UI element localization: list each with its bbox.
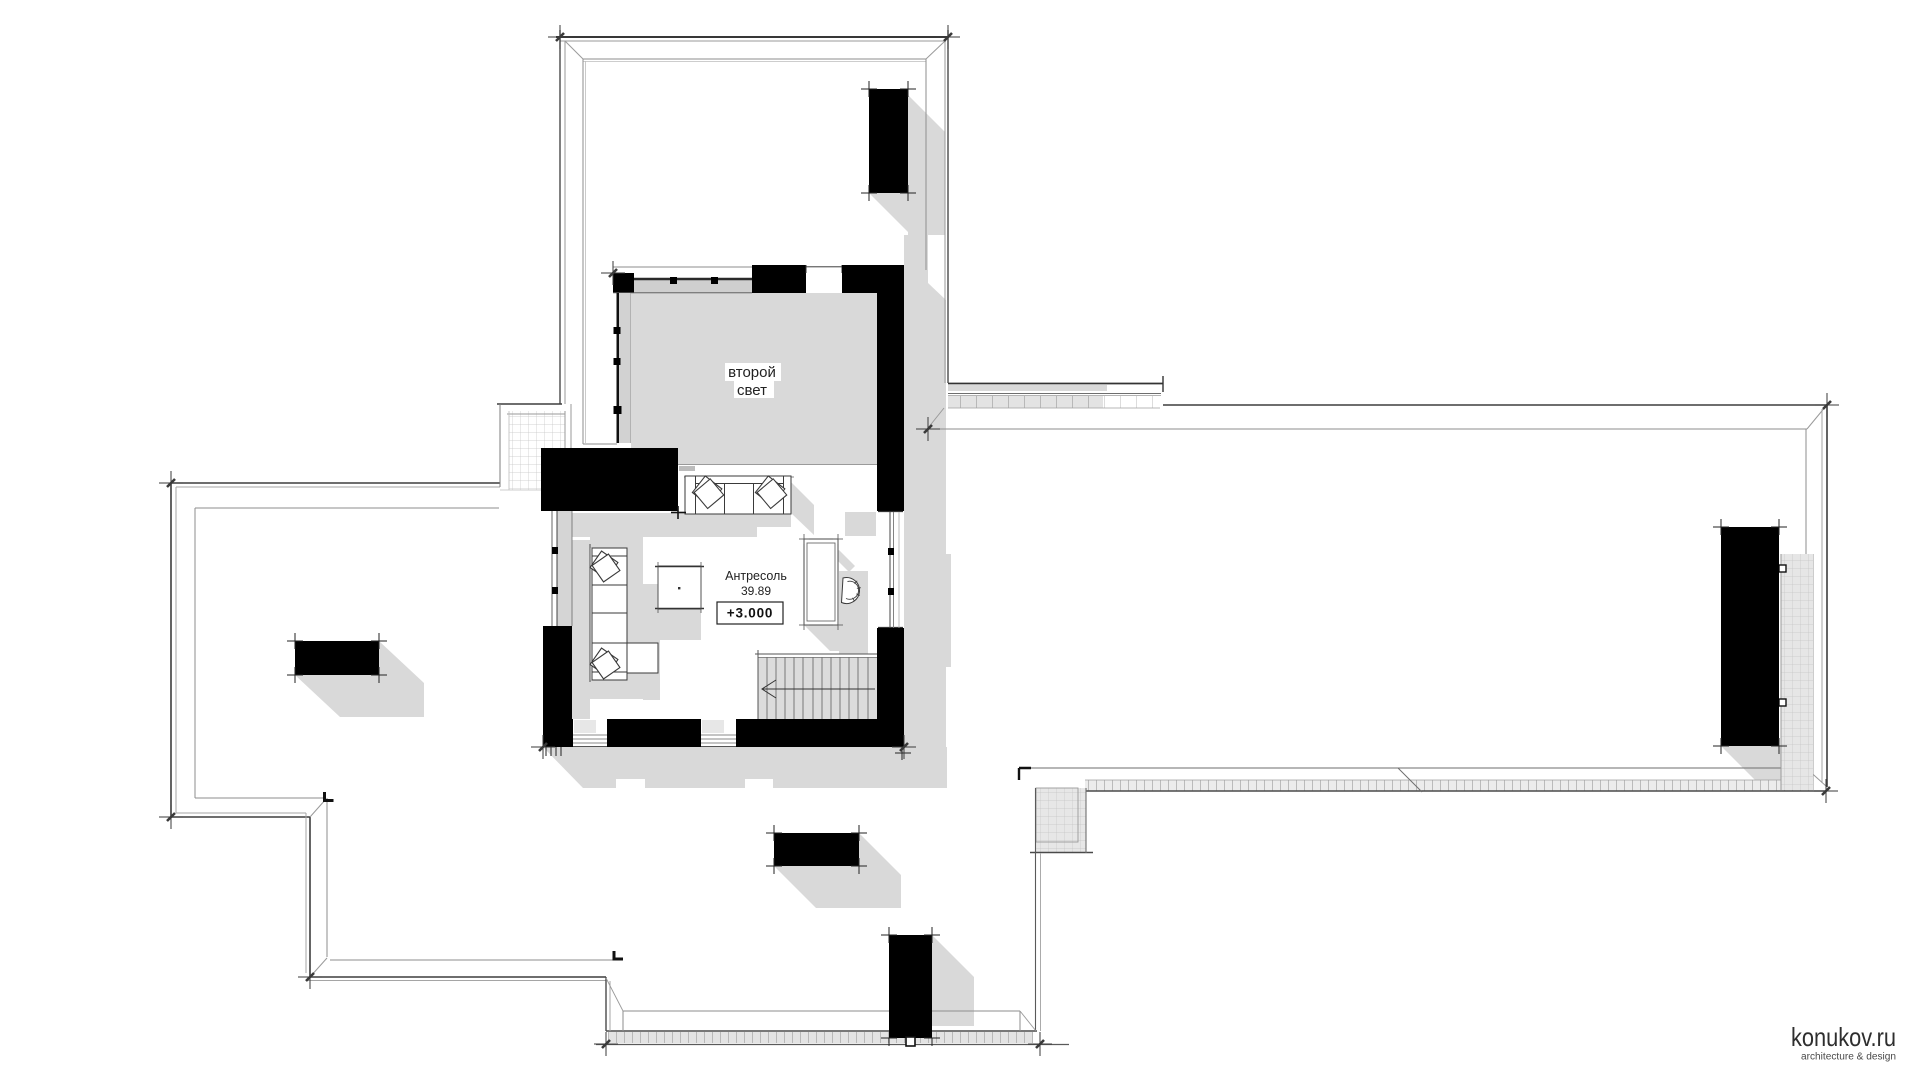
svg-text:architecture & design: architecture & design: [1801, 1052, 1896, 1063]
svg-text:39.89: 39.89: [741, 584, 771, 598]
svg-text:свет: свет: [737, 382, 767, 399]
svg-text:Антресоль: Антресоль: [725, 569, 787, 583]
svg-text:+3.000: +3.000: [727, 606, 773, 621]
svg-text:второй: второй: [728, 364, 776, 381]
svg-text:konukov.ru: konukov.ru: [1791, 1022, 1896, 1052]
